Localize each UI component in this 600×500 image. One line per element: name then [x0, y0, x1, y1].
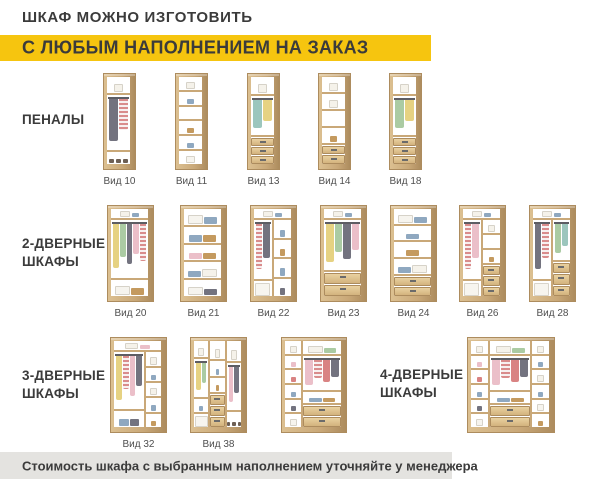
wardrobe-column	[393, 77, 416, 164]
folded-items	[329, 100, 338, 108]
hanging-clothes	[127, 224, 133, 264]
wardrobe-caption: Вид 14	[304, 176, 365, 187]
folded-items	[188, 271, 201, 277]
folded-items	[291, 377, 296, 382]
drawer	[483, 266, 501, 275]
folded-items	[115, 286, 130, 295]
wardrobe-illustration: Вид 24	[390, 205, 437, 302]
hanging-section	[194, 359, 208, 398]
folded-items	[131, 288, 144, 295]
wardrobe-caption: Вид 20	[93, 308, 168, 319]
folded-items	[537, 375, 544, 382]
hanging-clothes	[511, 360, 519, 382]
hanging-clothes	[520, 360, 528, 376]
folded-items	[215, 349, 221, 358]
hanging-clothes	[562, 224, 568, 245]
wardrobe-frame	[190, 337, 247, 433]
folded-items	[476, 419, 483, 426]
storage-box-compartment	[533, 281, 551, 296]
shelf-compartment	[251, 77, 274, 96]
shelf-compartment	[532, 370, 549, 385]
shelf-compartment	[114, 411, 144, 427]
shelf-compartment	[322, 128, 345, 145]
drawer	[553, 286, 571, 296]
wardrobe-caption: Вид 28	[515, 308, 590, 319]
wardrobe-column	[184, 209, 221, 296]
hanging-clothes	[465, 224, 471, 269]
hanging-section	[254, 220, 272, 280]
drawer	[553, 263, 571, 273]
drawer	[324, 273, 361, 284]
folded-items	[398, 215, 413, 223]
drawer-stack	[251, 137, 274, 164]
folded-items	[150, 388, 156, 395]
hanging-clothes	[202, 363, 207, 383]
hanging-clothes	[555, 224, 561, 253]
hanging-section	[393, 96, 416, 137]
hanging-clothes	[535, 224, 541, 269]
shelf-compartment	[274, 220, 292, 239]
folded-items	[400, 84, 409, 93]
wardrobe-frame	[175, 73, 208, 170]
wardrobe-caption: Вид 24	[376, 308, 451, 319]
folded-items	[203, 253, 216, 259]
wardrobe-caption: Вид 13	[233, 176, 294, 187]
drawer	[251, 138, 274, 146]
row-label-4-door-wardrobes: 4-ДВЕРНЫЕ ШКАФЫ	[380, 366, 463, 401]
shelf-compartment	[179, 77, 202, 92]
shelf-compartment	[394, 209, 431, 226]
folded-items	[511, 398, 524, 402]
shelf-compartment	[393, 77, 416, 96]
shelf-compartment	[285, 385, 301, 400]
hanging-section	[303, 356, 341, 392]
shelf-compartment	[146, 352, 161, 367]
shelf-compartment	[179, 92, 202, 107]
wardrobe-frame	[110, 337, 167, 433]
folded-items	[198, 348, 204, 357]
drawer-stack	[322, 145, 345, 164]
hanging-clothes	[120, 224, 126, 257]
shoe	[109, 159, 114, 163]
shelf-compartment	[184, 262, 221, 280]
shelf-compartment	[303, 392, 341, 405]
wardrobe-caption: Вид 10	[89, 176, 150, 187]
folded-items	[345, 213, 353, 218]
folded-items	[554, 213, 562, 218]
shelf-compartment	[194, 399, 208, 414]
wardrobe-column	[251, 77, 274, 164]
wardrobe-column	[532, 341, 549, 427]
folded-items	[130, 419, 140, 426]
wardrobe-frame	[318, 73, 351, 170]
wardrobe-caption: Вид 23	[306, 308, 381, 319]
folded-items	[189, 253, 202, 259]
drawer	[303, 417, 341, 427]
folded-items	[291, 362, 296, 367]
wardrobe-illustration	[281, 337, 347, 433]
folded-items	[330, 136, 337, 142]
folded-items	[488, 225, 495, 232]
hanging-clothes	[314, 360, 322, 378]
drawer-stack	[553, 262, 571, 296]
shelf-compartment	[210, 378, 224, 395]
wardrobe-illustration: Вид 32	[110, 337, 167, 433]
shelf-compartment	[194, 341, 208, 359]
hanging-section	[227, 363, 241, 412]
folded-items	[275, 213, 283, 218]
shelf-compartment	[146, 368, 161, 383]
shelf-compartment	[179, 107, 202, 122]
footer-note: Стоимость шкафа с выбранным наполнением …	[22, 458, 478, 473]
drawer	[322, 155, 345, 164]
wardrobe-illustration: Вид 28	[529, 205, 576, 302]
wardrobe-frame	[247, 73, 280, 170]
hanging-clothes	[472, 224, 478, 258]
shelf-compartment	[146, 398, 161, 413]
shelf-compartment	[227, 341, 241, 363]
shelf-compartment	[532, 414, 549, 427]
hanging-clothes	[263, 100, 272, 121]
hanging-section	[533, 220, 551, 280]
folded-items	[188, 287, 203, 295]
wardrobe-column	[194, 341, 208, 427]
folded-items	[323, 398, 336, 402]
hanging-clothes	[263, 224, 269, 258]
folded-items	[189, 235, 202, 241]
folded-items	[188, 215, 203, 223]
shelf-compartment	[179, 136, 202, 151]
folded-items	[291, 406, 296, 411]
folded-items	[216, 385, 220, 391]
folded-items	[406, 250, 419, 256]
shelf-compartment	[483, 235, 501, 250]
folded-items	[538, 362, 543, 367]
drawer	[303, 406, 341, 416]
row-label-3-door-wardrobes: 3-ДВЕРНЫЕ ШКАФЫ	[22, 367, 105, 402]
hanging-clothes	[331, 360, 339, 376]
hanging-clothes	[253, 100, 262, 129]
shelf-compartment	[483, 250, 501, 265]
hanging-clothes	[492, 360, 500, 384]
shoe	[232, 422, 235, 426]
wardrobe-frame	[459, 205, 506, 302]
wardrobe-caption: Вид 18	[375, 176, 436, 187]
wardrobe-illustration: Вид 13	[247, 73, 280, 170]
folded-items	[140, 345, 150, 349]
shelf-compartment	[471, 356, 488, 371]
drawer	[483, 276, 501, 285]
folded-items	[204, 217, 217, 223]
hanging-clothes	[256, 224, 262, 269]
hanging-clothes	[405, 100, 414, 121]
folded-items	[204, 289, 217, 295]
wardrobe-column	[254, 220, 272, 296]
wardrobe-frame	[320, 205, 367, 302]
folded-items	[414, 217, 427, 223]
drawer	[393, 138, 416, 146]
folded-items	[537, 346, 544, 353]
shelf-compartment	[394, 226, 431, 243]
shelf-compartment	[322, 111, 345, 128]
hanging-section	[107, 95, 130, 151]
shelf-compartment	[210, 361, 224, 378]
wardrobe-frame	[389, 73, 422, 170]
wardrobe-column	[553, 220, 571, 296]
folded-items	[151, 405, 155, 410]
shelf-compartment	[471, 414, 488, 427]
drawer	[210, 417, 224, 427]
drawer-stack	[394, 276, 431, 296]
drawer-stack	[393, 137, 416, 164]
hanging-section	[490, 356, 531, 392]
storage-box-compartment	[254, 281, 272, 296]
shelf-compartment	[146, 383, 161, 398]
shelf-compartment	[322, 94, 345, 111]
shelf-compartment	[483, 220, 501, 235]
hanging-clothes	[119, 99, 128, 130]
shelf-compartment	[532, 341, 549, 356]
folded-items	[150, 357, 156, 364]
drawer	[490, 417, 531, 427]
drawer	[324, 285, 361, 296]
hanging-clothes	[113, 224, 119, 268]
folded-items	[187, 143, 194, 148]
wardrobe-illustration: Вид 22	[250, 205, 297, 302]
folded-items	[472, 211, 482, 218]
drawer	[251, 156, 274, 164]
wardrobe-column	[210, 341, 224, 427]
shelf-compartment	[274, 279, 292, 296]
folded-items	[231, 350, 237, 360]
title-highlight-bar: С ЛЮБЫМ НАПОЛНЕНИЕМ НА ЗАКАЗ	[0, 35, 431, 61]
wardrobe-frame	[103, 73, 136, 170]
folded-items	[477, 392, 482, 397]
folded-items	[290, 346, 297, 353]
folded-items	[216, 369, 220, 375]
wardrobe-column	[394, 209, 431, 296]
hanging-section	[463, 220, 481, 280]
hanging-section	[111, 220, 148, 279]
page-title: ШКАФ МОЖНО ИЗГОТОВИТЬ	[22, 9, 253, 26]
shelf-compartment	[285, 341, 301, 356]
wardrobe-illustration: Вид 26	[459, 205, 506, 302]
shelf-compartment	[184, 245, 221, 263]
folded-items	[476, 346, 483, 353]
hanging-clothes	[140, 224, 146, 261]
drawer-stack	[303, 405, 341, 427]
folded-items	[484, 213, 492, 218]
shelf-compartment	[532, 400, 549, 415]
folded-items	[263, 211, 273, 218]
folded-items	[290, 419, 297, 426]
folded-items	[324, 348, 337, 353]
folded-items	[497, 398, 510, 402]
folded-items	[489, 257, 494, 262]
shelf-compartment	[184, 227, 221, 245]
shelf-compartment	[184, 209, 221, 227]
shelf-compartment	[532, 356, 549, 371]
top-shelf	[114, 341, 161, 352]
page-subtitle: С ЛЮБЫМ НАПОЛНЕНИЕМ НА ЗАКАЗ	[22, 38, 369, 59]
shelf-compartment	[285, 370, 301, 385]
shelf-compartment	[322, 77, 345, 94]
wardrobe-caption: Вид 32	[96, 439, 181, 450]
hanging-clothes	[123, 356, 129, 388]
drawer-stack	[210, 394, 224, 427]
folded-items	[496, 346, 511, 353]
wardrobe-frame	[281, 337, 347, 433]
drawer	[322, 146, 345, 155]
drawer	[251, 147, 274, 155]
folded-items	[186, 82, 195, 89]
top-shelf	[254, 209, 291, 220]
wardrobe-frame	[107, 205, 154, 302]
shelf-compartment	[107, 77, 130, 95]
wardrobe-illustration: Вид 18	[389, 73, 422, 170]
folded-items	[114, 84, 123, 93]
folded-items	[309, 398, 322, 402]
top-shelf	[324, 209, 361, 220]
folded-items	[280, 230, 285, 237]
hanging-clothes	[116, 356, 122, 400]
hanging-section	[553, 220, 571, 261]
shelf-compartment	[490, 392, 531, 405]
shelf-compartment	[184, 280, 221, 296]
storage-box-compartment	[194, 414, 208, 427]
folded-items	[477, 362, 482, 367]
folded-items	[280, 268, 285, 275]
wardrobe-column	[114, 352, 144, 427]
hanging-clothes	[234, 367, 239, 393]
folded-items	[398, 267, 411, 273]
folded-items	[406, 234, 419, 240]
shelf-compartment	[471, 400, 488, 415]
wardrobe-caption: Вид 38	[176, 439, 261, 450]
folded-items	[280, 249, 285, 256]
folded-items	[329, 83, 338, 91]
storage-box	[255, 283, 270, 296]
shelf-compartment	[179, 151, 202, 164]
hanging-clothes	[542, 224, 548, 258]
catalog-poster: ШКАФ МОЖНО ИЗГОТОВИТЬ С ЛЮБЫМ НАПОЛНЕНИЕ…	[0, 0, 600, 500]
shelf-compartment	[210, 341, 224, 361]
wardrobe-illustration: Вид 23	[320, 205, 367, 302]
wardrobe-column	[324, 220, 361, 296]
wardrobe-illustration: Вид 38	[190, 337, 247, 433]
shoe-compartment	[107, 152, 130, 164]
wardrobe-frame	[467, 337, 555, 433]
top-shelf	[463, 209, 500, 220]
wardrobe-column	[227, 341, 241, 427]
folded-items	[291, 392, 296, 397]
folded-items	[132, 213, 140, 218]
wardrobe-caption: Вид 26	[445, 308, 520, 319]
shelf-compartment	[303, 341, 341, 356]
shelf-compartment	[274, 259, 292, 278]
folded-items	[186, 156, 195, 163]
wardrobe-frame	[529, 205, 576, 302]
wardrobe-column	[490, 341, 531, 427]
drawer	[394, 287, 431, 296]
hanging-section	[324, 220, 361, 272]
wardrobe-column	[322, 77, 345, 164]
folded-items	[542, 211, 552, 218]
wardrobe-frame	[180, 205, 227, 302]
wardrobe-column	[107, 77, 130, 164]
wardrobe-illustration: Вид 21	[180, 205, 227, 302]
hanging-section	[251, 96, 274, 137]
hanging-clothes	[335, 224, 343, 252]
wardrobe-column	[146, 352, 161, 427]
folded-items	[538, 421, 543, 426]
wardrobe-column	[471, 341, 488, 427]
wardrobe-illustration	[467, 337, 555, 433]
drawer	[490, 406, 531, 416]
hanging-clothes	[305, 360, 313, 384]
folded-items	[151, 421, 155, 426]
folded-items	[512, 348, 525, 353]
top-shelf	[533, 209, 570, 220]
shelf-compartment	[285, 400, 301, 415]
drawer	[394, 277, 431, 286]
shelf-compartment	[471, 370, 488, 385]
folded-items	[187, 128, 194, 133]
top-shelf	[111, 209, 148, 220]
hanging-clothes	[352, 224, 360, 250]
folded-items	[333, 211, 343, 218]
wardrobe-column	[285, 341, 301, 427]
wardrobe-column	[303, 341, 341, 427]
folded-items	[187, 99, 194, 104]
shelf-compartment	[394, 259, 431, 276]
folded-items	[280, 288, 285, 295]
folded-items	[537, 404, 544, 411]
folded-items	[119, 419, 129, 426]
hanging-section	[114, 352, 144, 411]
shoe	[123, 159, 128, 163]
wardrobe-column	[179, 77, 202, 164]
hanging-clothes	[343, 224, 351, 258]
shoe-compartment	[227, 412, 241, 427]
drawer-stack	[483, 265, 501, 296]
folded-items	[477, 406, 482, 411]
storage-box	[464, 283, 479, 296]
drawer	[553, 274, 571, 284]
hanging-clothes	[323, 360, 331, 382]
folded-items	[125, 343, 137, 349]
shoe	[116, 159, 121, 163]
hanging-clothes	[196, 363, 201, 390]
shelf-compartment	[285, 356, 301, 371]
folded-items	[151, 375, 155, 380]
shelf-compartment	[111, 280, 148, 296]
wardrobe-column	[111, 220, 148, 296]
wardrobe-column	[483, 220, 501, 296]
wardrobe-frame	[390, 205, 437, 302]
storage-box	[534, 283, 549, 296]
drawer	[210, 395, 224, 405]
hanging-clothes	[326, 224, 334, 262]
shelf-compartment	[394, 242, 431, 259]
drawer	[483, 287, 501, 296]
footer-note-bar: Стоимость шкафа с выбранным наполнением …	[0, 452, 452, 479]
folded-items	[412, 265, 427, 273]
folded-items	[202, 269, 217, 277]
folded-items	[199, 406, 203, 411]
hanging-clothes	[130, 356, 136, 396]
wardrobe-illustration: Вид 14	[318, 73, 351, 170]
